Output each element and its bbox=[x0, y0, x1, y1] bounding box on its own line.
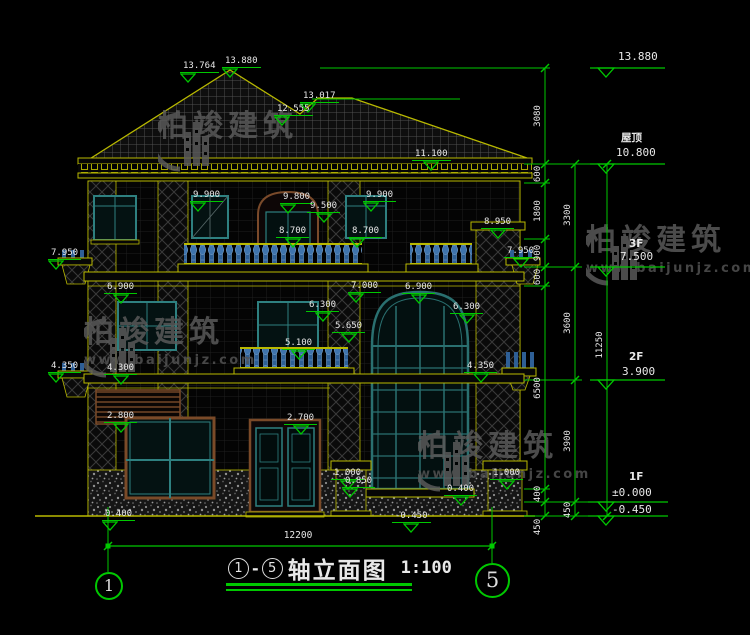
dimension-chain-lines bbox=[545, 68, 607, 516]
drawing-title: 1 - 5 轴立面图 1:100 bbox=[228, 551, 452, 585]
title-dash: - bbox=[252, 559, 259, 578]
title-underline bbox=[226, 583, 412, 586]
title-axis-start: 1 bbox=[228, 558, 249, 579]
cad-elevation-drawing: 柏竣建筑 www.baijunjz.com 柏竣建筑 www.baijunjz.… bbox=[0, 0, 750, 635]
overall-dimension-value: 12200 bbox=[268, 530, 328, 541]
title-axis-end: 5 bbox=[262, 558, 283, 579]
dimension-linework bbox=[0, 0, 750, 635]
axis-bubble-1: 1 bbox=[95, 572, 123, 600]
dimension-ticks bbox=[104, 64, 611, 550]
title-name: 轴立面图 bbox=[288, 551, 388, 585]
title-underline bbox=[226, 589, 412, 591]
axis-bubble-5: 5 bbox=[475, 563, 510, 598]
title-scale: 1:100 bbox=[401, 558, 452, 578]
